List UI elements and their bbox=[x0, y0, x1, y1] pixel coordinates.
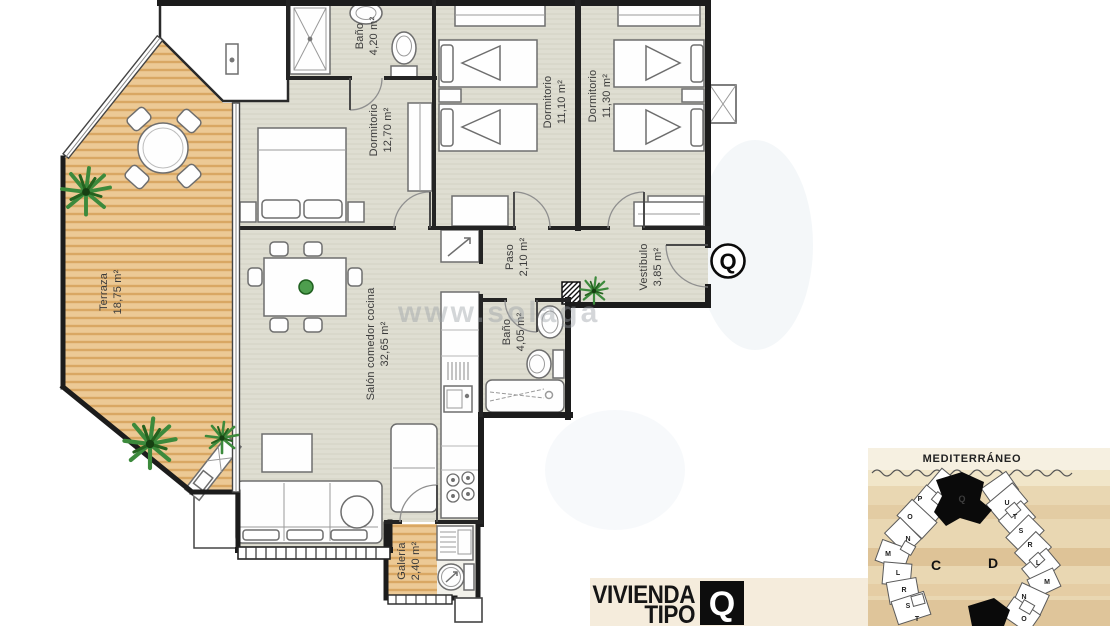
nightstand bbox=[682, 89, 704, 102]
label-bano1-name: Baño bbox=[354, 23, 366, 50]
sofa-cushion bbox=[287, 530, 323, 540]
block-d-label: D bbox=[988, 555, 998, 571]
highlighted-unit-letter: Q bbox=[958, 494, 965, 504]
dining-chair bbox=[248, 268, 262, 286]
sofa-cushion bbox=[243, 530, 279, 540]
pillow bbox=[262, 200, 300, 218]
label-galeria-area: 2,40 m² bbox=[410, 542, 422, 581]
pillow bbox=[304, 200, 342, 218]
galeria-fixtures bbox=[437, 526, 474, 590]
sofa-cushion bbox=[331, 530, 367, 540]
unit-badge-letter: Q bbox=[719, 249, 736, 274]
dining-chair bbox=[304, 318, 322, 332]
svg-text:P: P bbox=[918, 496, 923, 503]
label-paso-name: Paso bbox=[504, 244, 516, 270]
toilet-tank bbox=[391, 66, 417, 77]
dresser bbox=[452, 196, 508, 226]
pillow bbox=[691, 109, 703, 146]
svg-text:S: S bbox=[906, 603, 911, 610]
label-dorm2-area: 11,10 m² bbox=[556, 80, 568, 124]
caption-line2: TIPO bbox=[644, 601, 695, 626]
label-galeria-name: Galería bbox=[396, 542, 408, 580]
pouf bbox=[341, 496, 373, 528]
label-vestibulo-name: Vestíbulo bbox=[638, 243, 650, 290]
dining-chair bbox=[270, 318, 288, 332]
toilet-tank bbox=[553, 350, 564, 378]
unit-badge: Q bbox=[712, 245, 745, 278]
toilet bbox=[527, 350, 551, 378]
label-bano1-area: 4,20 m² bbox=[368, 17, 380, 56]
dining-chair bbox=[304, 242, 322, 256]
svg-text:U: U bbox=[1004, 500, 1009, 507]
galeria-shelf bbox=[464, 564, 474, 590]
exterior-step bbox=[455, 598, 482, 622]
pillow bbox=[691, 45, 703, 82]
svg-text:T: T bbox=[1013, 514, 1018, 521]
svg-text:M: M bbox=[1044, 579, 1050, 586]
floor-plan-drawing: Terraza 18,75 m² Baño 4,20 m² Dormitorio… bbox=[0, 0, 1110, 626]
laundry-sink bbox=[437, 526, 473, 560]
label-dorm3-name: Dormitorio bbox=[587, 70, 599, 123]
floor-plan-page: Terraza 18,75 m² Baño 4,20 m² Dormitorio… bbox=[0, 0, 1110, 626]
caption-badge-letter: Q bbox=[709, 585, 735, 623]
sea-label: MEDITERRÁNEO bbox=[923, 452, 1022, 465]
watermark-text: www.solaga bbox=[397, 296, 600, 329]
toilet bbox=[392, 32, 416, 64]
label-salon-area: 32,65 m² bbox=[379, 321, 391, 366]
svg-text:O: O bbox=[1021, 616, 1027, 623]
label-salon-name: Salón comedor cocina bbox=[365, 287, 377, 401]
coffee-table bbox=[262, 434, 312, 472]
label-dorm1-area: 12,70 m² bbox=[382, 107, 394, 152]
site-plan-inset: MEDITERRÁNEO bbox=[868, 448, 1110, 626]
nightstand bbox=[240, 202, 256, 222]
label-paso-area: 2,10 m² bbox=[518, 238, 530, 277]
svg-text:L: L bbox=[896, 570, 901, 577]
nightstand bbox=[348, 202, 364, 222]
svg-text:O: O bbox=[907, 514, 913, 521]
svg-text:N: N bbox=[905, 536, 910, 543]
label-dorm3-area: 11,30 m² bbox=[601, 74, 613, 118]
svg-text:S: S bbox=[1019, 528, 1024, 535]
label-terraza-name: Terraza bbox=[98, 272, 110, 311]
svg-text:M: M bbox=[885, 551, 891, 558]
label-vestibulo-area: 3,85 m² bbox=[652, 248, 664, 287]
terraza-floor bbox=[63, 38, 236, 492]
caption: VIVIENDA TIPO Q bbox=[590, 578, 868, 626]
svg-text:N: N bbox=[1021, 594, 1026, 601]
block-c-label: C bbox=[931, 557, 941, 573]
pillow bbox=[441, 45, 453, 82]
svg-text:T: T bbox=[915, 616, 920, 623]
table-plant bbox=[299, 280, 313, 294]
dining-chair bbox=[270, 242, 288, 256]
label-dorm1-name: Dormitorio bbox=[368, 104, 380, 157]
pillow bbox=[441, 109, 453, 146]
svg-text:R: R bbox=[901, 587, 906, 594]
dining-chair bbox=[348, 268, 362, 286]
svg-text:L: L bbox=[1036, 560, 1041, 567]
sw-corner-block bbox=[194, 492, 238, 548]
label-terraza-area: 18,75 m² bbox=[112, 269, 124, 314]
patio-table bbox=[138, 123, 188, 173]
nightstand bbox=[439, 89, 461, 102]
svg-text:R: R bbox=[1027, 542, 1032, 549]
label-dorm2-name: Dormitorio bbox=[542, 76, 554, 129]
